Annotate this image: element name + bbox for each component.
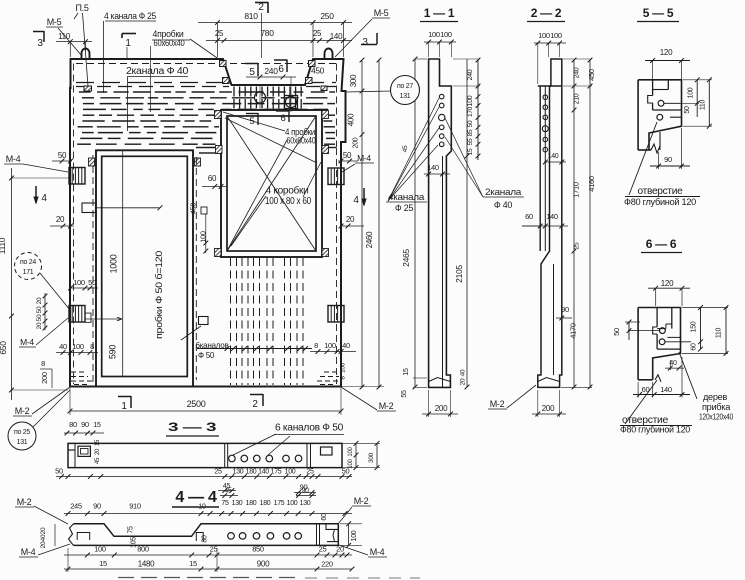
svg-text:50: 50 <box>684 106 691 114</box>
svg-text:100: 100 <box>287 500 298 507</box>
svg-text:1710: 1710 <box>572 182 581 198</box>
svg-text:250: 250 <box>320 11 334 21</box>
svg-text:25: 25 <box>319 545 327 554</box>
svg-text:100: 100 <box>428 30 440 39</box>
svg-text:90: 90 <box>81 420 89 429</box>
svg-text:110: 110 <box>716 327 723 338</box>
svg-text:2460: 2460 <box>365 231 374 248</box>
svg-text:15: 15 <box>403 368 410 376</box>
svg-text:20: 20 <box>36 322 43 329</box>
svg-text:3 — 3: 3 — 3 <box>168 420 217 434</box>
svg-text:М-4: М-4 <box>6 154 21 164</box>
svg-text:590: 590 <box>108 345 118 359</box>
svg-text:200: 200 <box>40 372 49 384</box>
svg-text:40: 40 <box>59 342 67 351</box>
svg-text:45: 45 <box>224 488 232 495</box>
svg-text:дерев: дерев <box>703 392 728 402</box>
svg-text:2500: 2500 <box>187 399 206 409</box>
svg-text:2: 2 <box>258 2 264 13</box>
svg-text:90: 90 <box>301 488 309 495</box>
svg-text:6 — 6: 6 — 6 <box>646 237 677 251</box>
svg-text:60х60х40: 60х60х40 <box>287 136 316 146</box>
svg-text:180: 180 <box>260 500 271 507</box>
svg-text:М-5: М-5 <box>374 8 389 18</box>
svg-text:50: 50 <box>36 306 43 313</box>
svg-text:5 — 5: 5 — 5 <box>643 6 674 20</box>
svg-text:10: 10 <box>198 504 206 511</box>
svg-text:25: 25 <box>574 242 581 249</box>
svg-text:90: 90 <box>93 502 101 511</box>
svg-text:300: 300 <box>368 452 375 463</box>
svg-text:810: 810 <box>244 11 258 21</box>
svg-text:60: 60 <box>208 174 217 183</box>
svg-text:245: 245 <box>70 502 82 511</box>
svg-text:100: 100 <box>72 342 84 351</box>
svg-text:120: 120 <box>661 279 674 288</box>
svg-text:М-4: М-4 <box>370 547 385 557</box>
svg-text:240: 240 <box>574 67 581 78</box>
svg-text:Ф 40: Ф 40 <box>494 200 512 210</box>
svg-text:М-2: М-2 <box>17 497 32 507</box>
svg-text:5: 5 <box>249 67 255 78</box>
svg-text:45: 45 <box>95 457 101 464</box>
svg-text:40: 40 <box>40 534 47 541</box>
svg-text:4 канала Ф 25: 4 канала Ф 25 <box>104 11 156 22</box>
svg-text:по 24: по 24 <box>20 259 36 266</box>
svg-text:80: 80 <box>202 535 209 543</box>
svg-text:80: 80 <box>69 420 77 429</box>
svg-text:150: 150 <box>691 321 698 332</box>
svg-text:1480: 1480 <box>138 560 155 569</box>
svg-text:Ф 25: Ф 25 <box>395 203 413 213</box>
svg-text:180: 180 <box>246 469 257 476</box>
svg-text:75: 75 <box>221 500 229 507</box>
svg-text:50: 50 <box>612 328 621 336</box>
svg-text:120х120х40: 120х120х40 <box>699 412 733 422</box>
svg-text:450: 450 <box>587 69 596 81</box>
svg-text:15: 15 <box>467 148 474 155</box>
svg-text:25: 25 <box>214 469 222 476</box>
svg-text:100: 100 <box>538 31 550 40</box>
svg-text:20: 20 <box>460 378 467 385</box>
svg-text:55: 55 <box>401 390 408 398</box>
svg-text:1000: 1000 <box>109 254 119 273</box>
svg-text:8: 8 <box>41 359 45 368</box>
svg-text:450: 450 <box>189 203 198 215</box>
svg-text:Ф 50: Ф 50 <box>198 351 215 360</box>
svg-text:2канала: 2канала <box>485 187 522 198</box>
svg-text:200: 200 <box>542 404 555 413</box>
svg-text:300: 300 <box>349 74 358 87</box>
svg-text:200: 200 <box>435 404 448 413</box>
svg-text:45: 45 <box>402 145 409 152</box>
svg-text:2 — 2: 2 — 2 <box>531 6 562 20</box>
svg-text:100: 100 <box>340 362 347 373</box>
svg-text:2канала Ф 40: 2канала Ф 40 <box>126 66 189 77</box>
svg-text:Ф80 глубиной 120: Ф80 глубиной 120 <box>620 425 690 436</box>
svg-text:140: 140 <box>548 153 559 160</box>
svg-text:15: 15 <box>95 439 101 446</box>
svg-text:1110: 1110 <box>0 237 7 254</box>
svg-text:60: 60 <box>525 212 533 221</box>
svg-text:650: 650 <box>0 341 8 355</box>
svg-text:М-5: М-5 <box>47 17 62 27</box>
svg-text:4170: 4170 <box>569 323 578 339</box>
svg-text:25: 25 <box>215 29 224 38</box>
svg-text:20: 20 <box>40 541 47 548</box>
svg-text:220: 220 <box>321 560 333 569</box>
svg-text:по 27: по 27 <box>397 83 413 90</box>
svg-text:131: 131 <box>400 93 411 100</box>
svg-text:4 коробки: 4 коробки <box>266 185 309 197</box>
svg-text:М-4: М-4 <box>20 337 34 347</box>
svg-text:20: 20 <box>56 215 65 224</box>
svg-text:8: 8 <box>314 341 318 350</box>
svg-text:60х60х40: 60х60х40 <box>154 38 185 48</box>
svg-text:4 — 4: 4 — 4 <box>175 489 217 506</box>
svg-text:140: 140 <box>546 212 558 221</box>
svg-text:6 каналов Ф 50: 6 каналов Ф 50 <box>275 423 344 434</box>
svg-text:П.5: П.5 <box>75 3 88 13</box>
svg-text:175: 175 <box>274 500 285 507</box>
svg-text:60: 60 <box>691 343 698 351</box>
svg-text:50: 50 <box>343 151 352 160</box>
svg-text:20: 20 <box>346 215 355 224</box>
svg-text:60: 60 <box>321 513 328 521</box>
svg-text:М-2: М-2 <box>490 399 505 409</box>
svg-text:15: 15 <box>99 559 107 568</box>
svg-text:200: 200 <box>353 137 360 148</box>
svg-text:180: 180 <box>246 500 257 507</box>
svg-text:3: 3 <box>37 38 43 49</box>
svg-text:120: 120 <box>660 48 673 57</box>
svg-text:М-2: М-2 <box>354 496 369 506</box>
svg-text:100 х 80 х 60: 100 х 80 х 60 <box>265 196 312 207</box>
svg-text:50: 50 <box>58 151 67 160</box>
svg-text:15: 15 <box>189 559 197 568</box>
svg-text:900: 900 <box>257 560 270 569</box>
svg-text:6: 6 <box>278 64 284 75</box>
svg-text:4: 4 <box>353 195 359 206</box>
svg-text:отверстие: отверстие <box>638 186 684 197</box>
svg-text:100: 100 <box>73 278 85 287</box>
svg-text:20: 20 <box>95 448 101 455</box>
svg-text:2105: 2105 <box>454 265 464 283</box>
svg-text:20: 20 <box>336 545 344 554</box>
svg-text:3: 3 <box>362 37 368 48</box>
svg-text:прибка: прибка <box>702 402 730 412</box>
svg-text:6: 6 <box>281 113 286 124</box>
svg-text:85: 85 <box>467 129 474 136</box>
svg-text:6каналов: 6каналов <box>196 340 230 350</box>
svg-text:М-4: М-4 <box>357 153 371 163</box>
svg-text:М-4: М-4 <box>21 547 36 557</box>
svg-text:50: 50 <box>467 120 474 127</box>
svg-text:Ф80 глубиной 120: Ф80 глубиной 120 <box>624 197 696 208</box>
svg-text:780: 780 <box>260 28 274 38</box>
svg-text:110: 110 <box>58 32 71 41</box>
svg-text:20: 20 <box>36 297 43 304</box>
svg-text:100: 100 <box>351 530 358 541</box>
svg-text:пробки Ф 50 б=120: пробки Ф 50 б=120 <box>154 251 164 339</box>
svg-text:М-2: М-2 <box>15 406 30 416</box>
svg-text:5: 5 <box>250 116 255 127</box>
svg-text:50: 50 <box>55 467 63 476</box>
svg-text:40: 40 <box>342 341 350 350</box>
svg-text:131: 131 <box>17 439 28 446</box>
svg-text:40: 40 <box>460 369 467 376</box>
svg-text:140: 140 <box>427 163 439 172</box>
svg-text:210: 210 <box>574 93 581 104</box>
svg-text:130: 130 <box>232 500 243 507</box>
svg-text:25: 25 <box>210 545 218 554</box>
svg-text:1: 1 <box>125 38 131 49</box>
svg-text:100: 100 <box>94 545 106 554</box>
svg-text:800: 800 <box>137 545 149 554</box>
svg-text:55: 55 <box>467 138 474 145</box>
svg-text:175: 175 <box>271 469 282 476</box>
svg-text:4160: 4160 <box>587 176 596 192</box>
svg-text:110: 110 <box>700 99 707 110</box>
svg-text:100: 100 <box>440 30 452 39</box>
svg-text:100: 100 <box>348 446 354 456</box>
svg-text:140: 140 <box>330 32 343 41</box>
svg-text:400: 400 <box>347 113 356 126</box>
svg-text:140: 140 <box>660 385 672 394</box>
svg-text:1: 1 <box>121 401 127 412</box>
svg-text:по 25: по 25 <box>14 429 30 436</box>
svg-text:100: 100 <box>324 341 336 350</box>
svg-text:М-2: М-2 <box>379 401 394 411</box>
svg-text:8: 8 <box>90 342 94 351</box>
svg-text:240: 240 <box>264 66 278 76</box>
svg-text:4: 4 <box>41 193 47 204</box>
svg-text:100: 100 <box>688 87 695 98</box>
svg-text:100: 100 <box>550 31 562 40</box>
svg-text:2465: 2465 <box>401 249 411 267</box>
svg-text:171: 171 <box>23 269 34 276</box>
svg-text:100: 100 <box>348 458 354 468</box>
svg-text:170: 170 <box>467 106 474 117</box>
svg-text:140: 140 <box>258 469 269 476</box>
svg-text:130: 130 <box>300 500 311 507</box>
svg-text:850: 850 <box>252 545 264 554</box>
svg-text:20: 20 <box>40 527 47 534</box>
svg-text:50: 50 <box>36 314 43 321</box>
svg-text:90: 90 <box>561 305 569 314</box>
svg-text:910: 910 <box>129 502 141 511</box>
svg-text:100: 100 <box>285 469 296 476</box>
svg-text:15: 15 <box>93 422 101 429</box>
svg-text:450: 450 <box>311 67 325 76</box>
svg-text:100: 100 <box>467 95 474 106</box>
svg-text:2: 2 <box>252 399 258 410</box>
svg-text:90: 90 <box>664 155 672 164</box>
svg-text:75: 75 <box>128 526 135 534</box>
svg-text:1 — 1: 1 — 1 <box>424 6 455 20</box>
svg-text:240: 240 <box>467 69 474 80</box>
svg-text:25: 25 <box>313 29 322 38</box>
